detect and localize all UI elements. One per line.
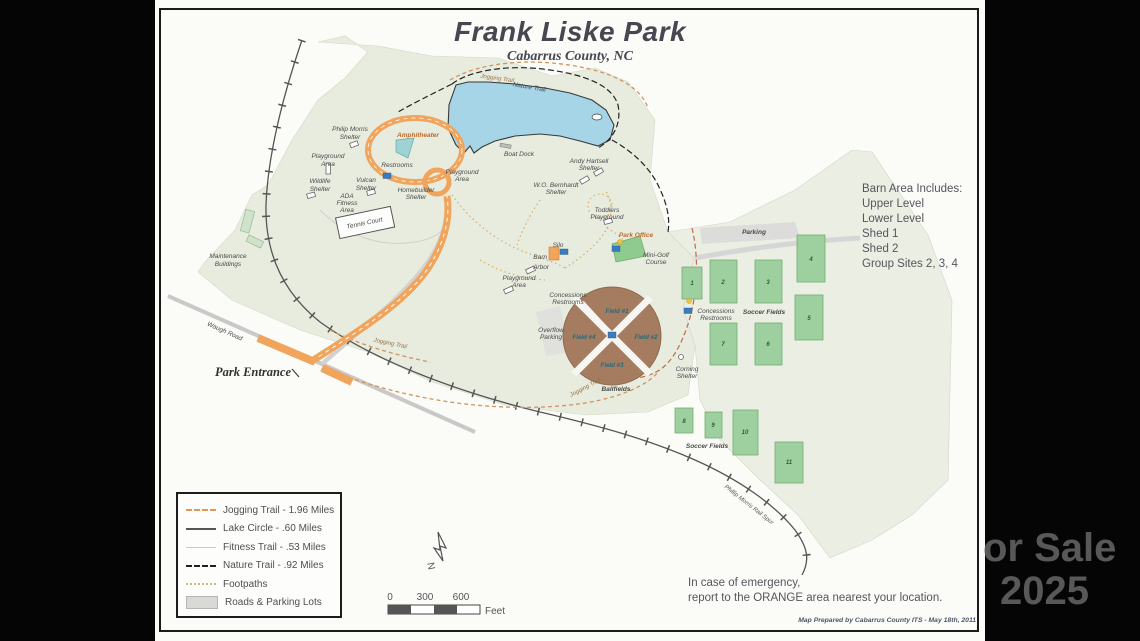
map-label: Soccer Fields	[686, 443, 729, 450]
map-label: Area	[320, 161, 335, 168]
barn-notes-line: Upper Level	[862, 197, 982, 212]
map-label: Amphitheater	[396, 132, 439, 139]
soccer-field-number: 11	[786, 460, 793, 466]
ballfield-label: Field #4	[572, 334, 596, 341]
map-label: Toddlers	[595, 207, 620, 214]
map-label: W.O. Bernhardt	[534, 182, 580, 189]
map-label: Arbor	[532, 264, 550, 271]
emergency-line: In case of emergency,	[688, 576, 942, 591]
map-label: Boat Dock	[504, 151, 535, 158]
legend-row: Fitness Trail - .53 Miles	[186, 538, 332, 557]
map-label: Maintenance	[209, 253, 247, 260]
map-label: Philip Morris	[332, 126, 369, 133]
restroom-icon	[383, 173, 391, 179]
map-label: Barn	[533, 254, 547, 261]
map-label: Shelter	[310, 186, 331, 193]
restroom-icon	[684, 308, 692, 314]
soccer-field-number: 2	[720, 280, 725, 286]
map-label: ADA	[339, 193, 353, 200]
map-label: Mini-Golf	[643, 252, 670, 259]
watermark-year: 2025	[1000, 570, 1089, 612]
legend-row: Nature Trail - .92 Miles	[186, 557, 332, 576]
map-label: Vulcan	[356, 177, 376, 184]
barn-notes-line: Shed 1	[862, 227, 982, 242]
park-entrance-label: Park Entrance	[215, 365, 292, 379]
map-label: Homebuilder	[398, 187, 436, 194]
legend-row: Jogging Trail - 1.96 Miles	[186, 501, 332, 520]
footpath-line-icon	[186, 583, 216, 585]
map-label: Shelter	[546, 189, 567, 196]
concessions-icon	[687, 299, 692, 304]
park-map: Philip Morris Shelter Playground Area Wi…	[0, 0, 1140, 641]
scale-tick: 600	[453, 592, 470, 603]
map-label: Course	[646, 259, 667, 266]
legend-label: Lake Circle - .60 Miles	[223, 523, 322, 534]
ballfield-label: Field #2	[634, 334, 658, 341]
legend-label: Fitness Trail - .53 Miles	[223, 542, 326, 553]
legend-label: Footpaths	[223, 579, 267, 590]
watermark-text: or Sale	[983, 527, 1116, 569]
map-label: Playground	[503, 275, 536, 282]
map-label: Ballfields	[602, 386, 631, 393]
map-label: Concessions	[697, 308, 735, 315]
barn-notes-heading: Barn Area Includes:	[862, 182, 982, 197]
scale-tick: 0	[387, 592, 393, 603]
scale-tick: 300	[417, 592, 434, 603]
road-parking-swatch-icon	[186, 596, 218, 609]
page-subtitle: Cabarrus County, NC	[155, 49, 985, 65]
restroom-icon	[560, 249, 568, 255]
map-label: Shelter	[340, 134, 361, 141]
page-title: Frank Liske Park	[155, 16, 985, 48]
restroom-icon	[608, 332, 616, 338]
park-office-icon	[618, 240, 623, 245]
barn-area-notes: Barn Area Includes: Upper Level Lower Le…	[862, 182, 982, 272]
legend-label: Roads & Parking Lots	[225, 597, 322, 608]
lake-island	[592, 114, 602, 120]
map-label: Shelter	[579, 165, 600, 172]
map-label: Area	[339, 207, 354, 214]
map-label: Overflow	[538, 327, 565, 334]
shelter-icon	[679, 355, 684, 360]
fitness-trail-line-icon	[186, 547, 216, 548]
barn-notes-line: Group Sites 2, 3, 4	[862, 257, 982, 272]
map-label: Playground	[446, 169, 479, 176]
legend-label: Nature Trail - .92 Miles	[223, 560, 324, 571]
map-label: Soccer Fields	[743, 309, 786, 316]
legend-label: Jogging Trail - 1.96 Miles	[223, 505, 334, 516]
soccer-field-number: 4	[808, 257, 813, 263]
map-label: Andy Hartsell	[569, 158, 609, 165]
map-label: Shelter	[677, 373, 698, 380]
map-label: Restrooms	[381, 162, 413, 169]
map-label: Silo	[553, 242, 564, 249]
map-label: Park Office	[619, 232, 654, 239]
map-label: Parking	[540, 334, 562, 341]
emergency-line: report to the ORANGE area nearest your l…	[688, 591, 942, 606]
map-label: Concessions	[549, 292, 587, 299]
map-label: Shelter	[356, 185, 377, 192]
nature-trail-line-icon	[186, 565, 216, 567]
map-title-block: Frank Liske Park Cabarrus County, NC	[155, 16, 985, 65]
map-label: Fitness	[337, 200, 359, 207]
ballfield-label: Field #3	[600, 362, 624, 369]
legend-row: Lake Circle - .60 Miles	[186, 520, 332, 539]
legend-row: Footpaths	[186, 575, 332, 594]
barn-notes-line: Shed 2	[862, 242, 982, 257]
map-label: Playground	[591, 214, 624, 221]
map-label: Shelter	[406, 194, 427, 201]
emergency-note: In case of emergency, report to the ORAN…	[688, 576, 942, 606]
map-label: Area	[454, 176, 469, 183]
map-label: Buildings	[215, 261, 242, 268]
map-label: Restrooms	[552, 299, 584, 306]
jogging-trail-line-icon	[186, 509, 216, 511]
map-label: Restrooms	[700, 315, 732, 322]
map-credit: Map Prepared by Cabarrus County ITS - Ma…	[690, 617, 976, 624]
screenshot-stage: Philip Morris Shelter Playground Area Wi…	[0, 0, 1140, 641]
map-label: Corning	[676, 366, 699, 373]
map-label: Parking	[742, 229, 766, 236]
ballfield-label: Field #1	[605, 308, 629, 315]
map-label: Area	[511, 282, 526, 289]
barn-notes-line: Lower Level	[862, 212, 982, 227]
legend-row: Roads & Parking Lots	[186, 594, 332, 613]
map-label: Wildlife	[310, 178, 331, 185]
lake-circle-line-icon	[186, 528, 216, 530]
map-label: Playground	[312, 153, 345, 160]
restroom-icon	[612, 246, 620, 252]
scale-unit: Feet	[485, 606, 505, 617]
map-legend: Jogging Trail - 1.96 Miles Lake Circle -…	[176, 492, 342, 618]
soccer-field-number: 10	[742, 430, 749, 436]
